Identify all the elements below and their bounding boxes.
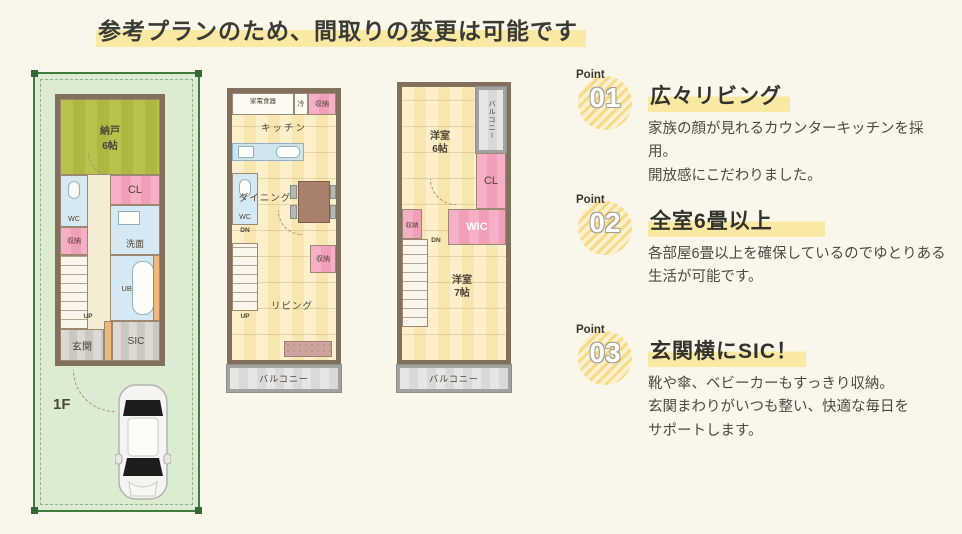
room-closet-2f-mid: 収納 — [310, 245, 336, 273]
chair — [330, 185, 336, 199]
balcony-2f: バルコニー — [227, 365, 341, 392]
point-03-badge: Point 03 — [578, 327, 632, 381]
room-cl-3f: CL — [476, 153, 506, 209]
chair — [290, 185, 297, 199]
room-appliance-shelf: 家電食器 — [232, 93, 294, 115]
room-closet-2f-top: 収納 — [308, 93, 336, 115]
badge-number: 03 — [578, 337, 632, 369]
living-label: リビング — [262, 301, 322, 313]
car-top-view — [115, 382, 171, 502]
page-title-text: 参考プランのため、間取りの変更は可能です — [96, 18, 586, 47]
washbasin-icon — [118, 211, 140, 225]
point-02: Point 02 全室6畳以上 各部屋6畳以上を確保しているのでゆとりある 生活… — [578, 197, 950, 307]
badge-number: 02 — [578, 207, 632, 239]
floor-accent — [104, 321, 112, 361]
chair — [330, 205, 336, 219]
point-02-title: 全室6畳以上 — [648, 205, 825, 235]
point-03: Point 03 玄関横にSIC！ 靴や傘、ベビーカーもすっきり収納。 玄関まわ… — [578, 327, 950, 467]
room-cl-1f: CL — [110, 175, 160, 205]
stairs-dn-label-2f: DN — [232, 227, 258, 235]
stairs-2f — [232, 243, 258, 311]
point-01-body: 家族の顔が見れるカウンターキッチンを採用。 開放感にこだわりました。 — [648, 118, 950, 188]
page-title: 参考プランのため、間取りの変更は可能です — [96, 12, 586, 46]
toilet-icon — [68, 181, 80, 199]
stairs-3f — [402, 239, 428, 327]
fridge: 冷 — [294, 93, 308, 115]
room-wic: WIC — [448, 209, 506, 245]
dining-label: ダイニング — [234, 193, 296, 205]
balcony-3f-top: バルコニー — [476, 87, 506, 153]
plot-corner — [31, 70, 38, 77]
badge-number: 01 — [578, 82, 632, 114]
badge-point-label: Point — [576, 69, 605, 81]
badge-point-label: Point — [576, 324, 605, 336]
point-02-body: 各部屋6畳以上を確保しているのでゆとりある 生活が可能です。 — [648, 243, 946, 290]
plot-corner — [195, 507, 202, 514]
stairs-up-label-1f: UP — [76, 313, 100, 321]
badge-point-label: Point — [576, 194, 605, 206]
house-1f: 納戸 6帖 WC CL 洗面 収納 UP UB1616 玄関 SIC — [55, 94, 165, 366]
sink-icon — [276, 146, 300, 158]
point-03-body: 靴や傘、ベビーカーもすっきり収納。 玄関まわりがいつも整い、快適な毎日を サポー… — [648, 373, 909, 443]
house-2f: 家電食器 冷 収納 キッチン WC DN ダイニング UP 収納 リビング — [227, 88, 341, 365]
floor-label-1f: 1F — [53, 396, 71, 413]
point-01-title: 広々リビング — [648, 80, 790, 110]
floor-accent — [153, 255, 160, 321]
site-plot-1f: 1F 納戸 6帖 WC CL 洗面 収納 UP UB1616 玄関 SIC — [33, 72, 200, 512]
room-entrance: 玄関 — [60, 329, 104, 361]
stove-icon — [238, 146, 254, 158]
point-01-badge: Point 01 — [578, 72, 632, 126]
point-01: Point 01 広々リビング 家族の顔が見れるカウンターキッチンを採用。 開放… — [578, 72, 950, 182]
dining-table — [298, 181, 330, 223]
stairs-up-label-2f: UP — [232, 313, 258, 321]
point-02-title-text: 全室6畳以上 — [648, 210, 825, 237]
house-3f: 洋室 6帖 バルコニー CL 収納 WIC DN 洋室 7帖 — [397, 82, 511, 365]
room-closet-1f: 収納 — [60, 227, 88, 255]
point-03-title: 玄関横にSIC！ — [648, 335, 806, 365]
balcony-3f-bottom: バルコニー — [397, 365, 511, 392]
sofa — [284, 341, 332, 357]
plot-corner — [195, 70, 202, 77]
page: 参考プランのため、間取りの変更は可能です 1F 納戸 6帖 WC CL 洗面 収… — [0, 0, 962, 534]
room-storage-nando: 納戸 6帖 — [60, 99, 160, 175]
bathtub-icon — [132, 261, 154, 315]
living-door-arc — [278, 211, 302, 235]
stairs-dn-label-3f: DN — [426, 237, 446, 245]
room-closet-3f: 収納 — [402, 209, 422, 239]
point-02-badge: Point 02 — [578, 197, 632, 251]
point-01-title-text: 広々リビング — [648, 85, 790, 112]
kitchen-label: キッチン — [242, 123, 326, 135]
bedroom7-label: 洋室 7帖 — [432, 275, 492, 300]
room-sic: SIC — [112, 321, 160, 361]
bedroom6-label: 洋室 6帖 — [410, 131, 470, 156]
bedroom6-door-arc — [430, 179, 456, 205]
point-03-title-text: 玄関横にSIC！ — [648, 340, 806, 367]
plot-corner — [31, 507, 38, 514]
